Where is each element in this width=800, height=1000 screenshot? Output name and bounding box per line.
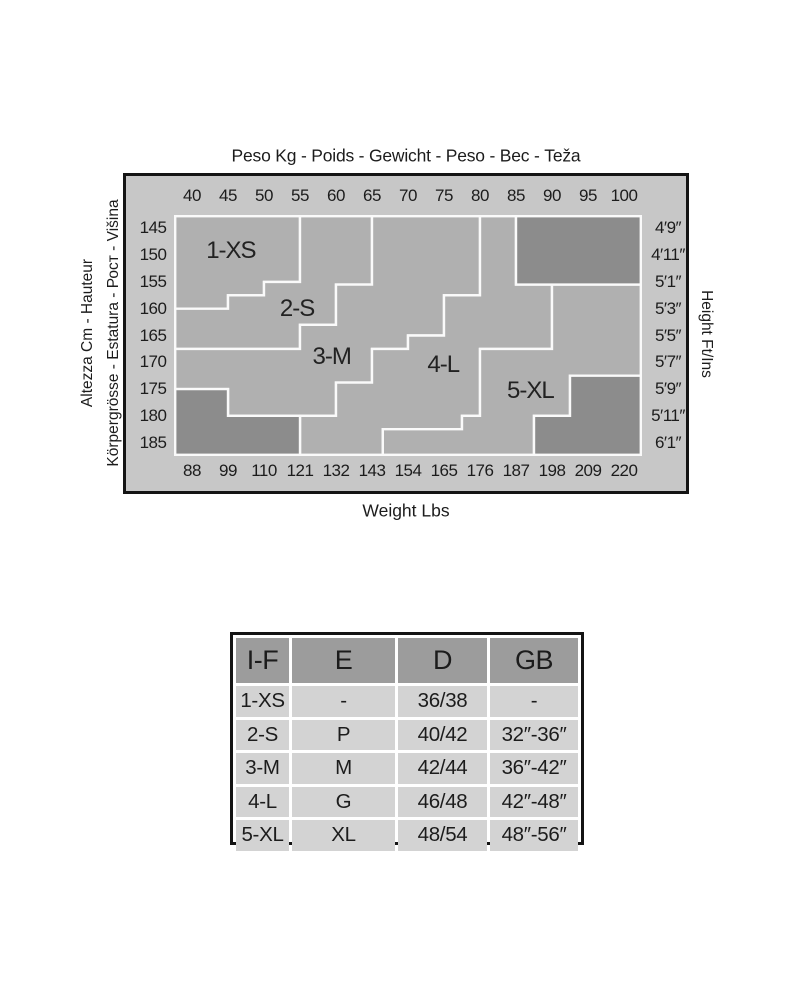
ftins-tick: 6′1″ xyxy=(655,433,681,453)
ftins-tick: 5′7″ xyxy=(655,352,681,372)
kg-tick: 55 xyxy=(291,186,309,206)
table-row: 4-LG46/4842″-48″ xyxy=(236,787,578,818)
table-cell: 3-M xyxy=(236,753,289,784)
table-cell: M xyxy=(292,753,395,784)
cm-tick: 160 xyxy=(140,299,167,319)
table-cell: 5-XL xyxy=(236,820,289,851)
kg-tick: 65 xyxy=(363,186,381,206)
table-cell: 32″-36″ xyxy=(490,720,578,751)
size-table-header: I-FEDGB xyxy=(236,638,578,683)
cm-tick: 165 xyxy=(140,326,167,346)
lbs-tick: 220 xyxy=(611,461,638,481)
table-row: 5-XLXL48/5448″-56″ xyxy=(236,820,578,851)
table-cell: 4-L xyxy=(236,787,289,818)
table-cell: 46/48 xyxy=(398,787,487,818)
table-cell: 48″-56″ xyxy=(490,820,578,851)
kg-tick: 60 xyxy=(327,186,345,206)
ftins-tick: 5′3″ xyxy=(655,299,681,319)
lbs-tick: 187 xyxy=(503,461,530,481)
lbs-tick: 165 xyxy=(431,461,458,481)
table-cell: 1-XS xyxy=(236,686,289,717)
table-cell: XL xyxy=(292,820,395,851)
size-conversion-table: I-FEDGB 1-XS-36/38-2-SP40/4232″-36″3-MM4… xyxy=(230,632,584,845)
table-row: 3-MM42/4436″-42″ xyxy=(236,753,578,784)
ftins-tick: 4′11″ xyxy=(651,245,685,265)
height-cm-axis-title-line1: Altezza Cm - Hauteur xyxy=(79,259,97,407)
table-header-i-f: I-F xyxy=(236,638,289,683)
kg-tick: 50 xyxy=(255,186,273,206)
table-cell: 36″-42″ xyxy=(490,753,578,784)
weight-kg-axis-title: Peso Kg - Poids - Gewicht - Peso - Вес -… xyxy=(232,146,581,167)
table-cell: - xyxy=(292,686,395,717)
height-cm-axis-title-line2: Körpergrösse - Estatura - Рост - Višina xyxy=(105,199,123,466)
ftins-tick: 5′1″ xyxy=(655,272,681,292)
table-cell: G xyxy=(292,787,395,818)
table-header-gb: GB xyxy=(490,638,578,683)
table-header-d: D xyxy=(398,638,487,683)
weight-lbs-axis-title: Weight Lbs xyxy=(362,501,449,522)
zone-label-4-l: 4-L xyxy=(427,351,459,379)
zone-label-1-xs: 1-XS xyxy=(206,237,255,265)
cm-tick: 155 xyxy=(140,272,167,292)
page: Peso Kg - Poids - Gewicht - Peso - Вес -… xyxy=(0,0,800,1000)
height-ftins-axis-title: Height Ft/Ins xyxy=(697,290,715,378)
table-cell: 42/44 xyxy=(398,753,487,784)
lbs-tick: 99 xyxy=(219,461,237,481)
cm-tick: 145 xyxy=(140,218,167,238)
kg-tick: 80 xyxy=(471,186,489,206)
ftins-tick: 5′9″ xyxy=(655,379,681,399)
zone-label-2-s: 2-S xyxy=(280,295,314,323)
kg-tick: 45 xyxy=(219,186,237,206)
cm-tick: 170 xyxy=(140,352,167,372)
out-of-range-block-1 xyxy=(516,215,642,285)
kg-tick: 100 xyxy=(611,186,638,206)
kg-tick: 75 xyxy=(435,186,453,206)
lbs-tick: 198 xyxy=(539,461,566,481)
ftins-tick: 5′11″ xyxy=(651,406,685,426)
cm-tick: 180 xyxy=(140,406,167,426)
kg-tick: 70 xyxy=(399,186,417,206)
table-cell: 2-S xyxy=(236,720,289,751)
kg-tick: 85 xyxy=(507,186,525,206)
kg-tick: 90 xyxy=(543,186,561,206)
table-cell: 48/54 xyxy=(398,820,487,851)
kg-tick: 40 xyxy=(183,186,201,206)
table-row: 1-XS-36/38- xyxy=(236,686,578,717)
ftins-tick: 5′5″ xyxy=(655,326,681,346)
lbs-tick: 143 xyxy=(359,461,386,481)
table-cell: - xyxy=(490,686,578,717)
table-cell: 42″-48″ xyxy=(490,787,578,818)
table-row: 2-SP40/4232″-36″ xyxy=(236,720,578,751)
table-cell: P xyxy=(292,720,395,751)
cm-tick: 150 xyxy=(140,245,167,265)
lbs-tick: 132 xyxy=(323,461,350,481)
table-header-e: E xyxy=(292,638,395,683)
lbs-tick: 154 xyxy=(395,461,422,481)
lbs-tick: 88 xyxy=(183,461,201,481)
table-cell: 40/42 xyxy=(398,720,487,751)
kg-tick: 95 xyxy=(579,186,597,206)
lbs-tick: 176 xyxy=(467,461,494,481)
size-table-body: 1-XS-36/38-2-SP40/4232″-36″3-MM42/4436″-… xyxy=(236,686,578,851)
lbs-tick: 110 xyxy=(251,461,277,481)
cm-tick: 185 xyxy=(140,433,167,453)
zone-label-3-m: 3-M xyxy=(313,343,351,371)
zone-label-5-xl: 5-XL xyxy=(507,377,554,405)
lbs-tick: 209 xyxy=(575,461,602,481)
ftins-tick: 4′9″ xyxy=(655,218,681,238)
table-cell: 36/38 xyxy=(398,686,487,717)
lbs-tick: 121 xyxy=(287,461,314,481)
cm-tick: 175 xyxy=(140,379,167,399)
